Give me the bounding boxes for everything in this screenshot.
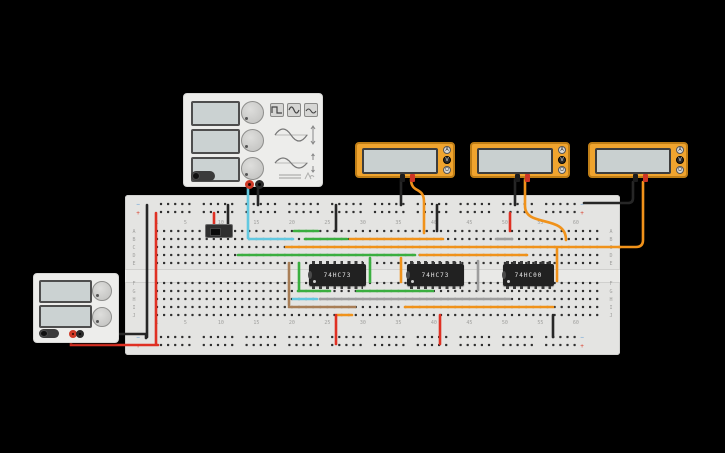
breadboard-hole[interactable] xyxy=(511,314,513,316)
breadboard-hole[interactable] xyxy=(589,238,591,240)
breadboard-hole[interactable] xyxy=(490,262,492,264)
breadboard-hole[interactable] xyxy=(220,298,222,300)
breadboard-hole[interactable] xyxy=(426,314,428,316)
breadboard-hole[interactable] xyxy=(589,306,591,308)
negative-terminal[interactable] xyxy=(255,180,264,189)
breadboard-hole[interactable] xyxy=(345,211,347,213)
breadboard-hole[interactable] xyxy=(509,336,511,338)
amplitude-knob[interactable] xyxy=(241,129,264,152)
breadboard-hole[interactable] xyxy=(220,262,222,264)
breadboard-hole[interactable] xyxy=(191,254,193,256)
breadboard-hole[interactable] xyxy=(383,314,385,316)
breadboard-hole[interactable] xyxy=(348,290,350,292)
breadboard-hole[interactable] xyxy=(481,211,483,213)
breadboard-hole[interactable] xyxy=(575,254,577,256)
breadboard-hole[interactable] xyxy=(589,230,591,232)
slide-switch-knob[interactable] xyxy=(210,228,221,236)
breadboard-hole[interactable] xyxy=(206,282,208,284)
breadboard-hole[interactable] xyxy=(388,336,390,338)
breadboard-hole[interactable] xyxy=(552,203,554,205)
ic-chip[interactable]: 74HC73 xyxy=(309,264,366,286)
breadboard-hole[interactable] xyxy=(270,282,272,284)
breadboard-hole[interactable] xyxy=(518,290,520,292)
breadboard-hole[interactable] xyxy=(303,336,305,338)
breadboard-hole[interactable] xyxy=(395,344,397,346)
breadboard-hole[interactable] xyxy=(417,336,419,338)
square-wave-button[interactable] xyxy=(270,103,284,117)
negative-probe-terminal[interactable] xyxy=(400,174,405,182)
breadboard-hole[interactable] xyxy=(277,306,279,308)
breadboard-hole[interactable] xyxy=(206,238,208,240)
breadboard-hole[interactable] xyxy=(248,290,250,292)
breadboard-hole[interactable] xyxy=(497,290,499,292)
breadboard-hole[interactable] xyxy=(288,336,290,338)
breadboard-hole[interactable] xyxy=(524,344,526,346)
breadboard-hole[interactable] xyxy=(360,344,362,346)
breadboard-hole[interactable] xyxy=(561,306,563,308)
breadboard-hole[interactable] xyxy=(220,290,222,292)
breadboard-hole[interactable] xyxy=(374,336,376,338)
breadboard-hole[interactable] xyxy=(298,314,300,316)
breadboard-hole[interactable] xyxy=(502,344,504,346)
breadboard-hole[interactable] xyxy=(575,282,577,284)
positive-probe-terminal[interactable] xyxy=(410,174,415,182)
breadboard-hole[interactable] xyxy=(360,336,362,338)
multimeter[interactable]: AVΩ xyxy=(355,142,455,178)
breadboard-hole[interactable] xyxy=(402,336,404,338)
breadboard-hole[interactable] xyxy=(539,290,541,292)
positive-terminal[interactable] xyxy=(245,180,254,189)
breadboard-hole[interactable] xyxy=(445,336,447,338)
breadboard-hole[interactable] xyxy=(270,262,272,264)
breadboard-hole[interactable] xyxy=(191,314,193,316)
breadboard-hole[interactable] xyxy=(227,246,229,248)
breadboard-hole[interactable] xyxy=(475,238,477,240)
breadboard-hole[interactable] xyxy=(234,314,236,316)
breadboard-hole[interactable] xyxy=(417,344,419,346)
breadboard-hole[interactable] xyxy=(184,230,186,232)
breadboard-hole[interactable] xyxy=(426,230,428,232)
breadboard-hole[interactable] xyxy=(388,203,390,205)
breadboard-hole[interactable] xyxy=(596,282,598,284)
breadboard-hole[interactable] xyxy=(227,306,229,308)
breadboard-hole[interactable] xyxy=(270,298,272,300)
mode-button-V[interactable]: V xyxy=(676,156,684,164)
breadboard-hole[interactable] xyxy=(402,211,404,213)
breadboard-hole[interactable] xyxy=(568,230,570,232)
breadboard-hole[interactable] xyxy=(191,230,193,232)
breadboard-hole[interactable] xyxy=(488,344,490,346)
breadboard-hole[interactable] xyxy=(241,290,243,292)
breadboard-hole[interactable] xyxy=(163,254,165,256)
breadboard-hole[interactable] xyxy=(468,238,470,240)
breadboard-hole[interactable] xyxy=(291,290,293,292)
breadboard-hole[interactable] xyxy=(561,262,563,264)
breadboard-hole[interactable] xyxy=(397,314,399,316)
breadboard-hole[interactable] xyxy=(369,314,371,316)
wire-black[interactable] xyxy=(584,182,633,203)
breadboard-hole[interactable] xyxy=(341,230,343,232)
breadboard-hole[interactable] xyxy=(199,262,201,264)
breadboard-hole[interactable] xyxy=(224,344,226,346)
breadboard-hole[interactable] xyxy=(210,344,212,346)
breadboard-hole[interactable] xyxy=(554,262,556,264)
breadboard-hole[interactable] xyxy=(277,298,279,300)
breadboard-hole[interactable] xyxy=(227,314,229,316)
breadboard-hole[interactable] xyxy=(376,314,378,316)
breadboard-hole[interactable] xyxy=(241,230,243,232)
breadboard-hole[interactable] xyxy=(163,246,165,248)
mode-button-A[interactable]: A xyxy=(443,146,451,154)
breadboard-hole[interactable] xyxy=(246,336,248,338)
breadboard-hole[interactable] xyxy=(160,211,162,213)
breadboard-hole[interactable] xyxy=(575,314,577,316)
breadboard-hole[interactable] xyxy=(461,290,463,292)
negative-probe-terminal[interactable] xyxy=(515,174,520,182)
breadboard-hole[interactable] xyxy=(390,306,392,308)
breadboard-hole[interactable] xyxy=(326,314,328,316)
breadboard-hole[interactable] xyxy=(546,254,548,256)
breadboard-hole[interactable] xyxy=(468,230,470,232)
breadboard-hole[interactable] xyxy=(167,344,169,346)
breadboard-hole[interactable] xyxy=(445,344,447,346)
breadboard-hole[interactable] xyxy=(525,230,527,232)
breadboard-hole[interactable] xyxy=(532,290,534,292)
breadboard-hole[interactable] xyxy=(167,211,169,213)
breadboard-hole[interactable] xyxy=(199,314,201,316)
breadboard-hole[interactable] xyxy=(248,314,250,316)
breadboard-hole[interactable] xyxy=(291,282,293,284)
breadboard-hole[interactable] xyxy=(518,314,520,316)
breadboard-hole[interactable] xyxy=(518,230,520,232)
breadboard-hole[interactable] xyxy=(383,306,385,308)
breadboard-hole[interactable] xyxy=(270,230,272,232)
breadboard-hole[interactable] xyxy=(260,203,262,205)
breadboard-hole[interactable] xyxy=(532,238,534,240)
breadboard-hole[interactable] xyxy=(341,290,343,292)
breadboard-hole[interactable] xyxy=(305,262,307,264)
breadboard-hole[interactable] xyxy=(253,344,255,346)
breadboard-hole[interactable] xyxy=(234,246,236,248)
breadboard-hole[interactable] xyxy=(596,238,598,240)
breadboard-hole[interactable] xyxy=(170,262,172,264)
breadboard-hole[interactable] xyxy=(438,211,440,213)
breadboard-hole[interactable] xyxy=(574,211,576,213)
breadboard-hole[interactable] xyxy=(575,298,577,300)
breadboard-hole[interactable] xyxy=(210,211,212,213)
breadboard-hole[interactable] xyxy=(203,203,205,205)
breadboard-hole[interactable] xyxy=(248,246,250,248)
mode-button-Ω[interactable]: Ω xyxy=(558,166,566,174)
breadboard-hole[interactable] xyxy=(277,230,279,232)
breadboard-hole[interactable] xyxy=(241,298,243,300)
mode-button-A[interactable]: A xyxy=(558,146,566,154)
breadboard-hole[interactable] xyxy=(270,306,272,308)
breadboard-hole[interactable] xyxy=(539,230,541,232)
breadboard-hole[interactable] xyxy=(481,344,483,346)
breadboard-hole[interactable] xyxy=(160,336,162,338)
breadboard-hole[interactable] xyxy=(490,230,492,232)
breadboard-hole[interactable] xyxy=(288,211,290,213)
breadboard-hole[interactable] xyxy=(267,336,269,338)
breadboard-hole[interactable] xyxy=(206,306,208,308)
breadboard-hole[interactable] xyxy=(220,314,222,316)
breadboard-hole[interactable] xyxy=(206,262,208,264)
breadboard-hole[interactable] xyxy=(568,238,570,240)
breadboard-hole[interactable] xyxy=(241,314,243,316)
breadboard-hole[interactable] xyxy=(532,230,534,232)
breadboard-hole[interactable] xyxy=(199,230,201,232)
breadboard-hole[interactable] xyxy=(163,290,165,292)
breadboard-hole[interactable] xyxy=(184,262,186,264)
breadboard-hole[interactable] xyxy=(288,344,290,346)
breadboard-hole[interactable] xyxy=(274,203,276,205)
breadboard-hole[interactable] xyxy=(255,290,257,292)
breadboard-hole[interactable] xyxy=(199,290,201,292)
breadboard-hole[interactable] xyxy=(433,314,435,316)
breadboard-hole[interactable] xyxy=(338,211,340,213)
breadboard-hole[interactable] xyxy=(191,262,193,264)
breadboard-hole[interactable] xyxy=(248,298,250,300)
breadboard-hole[interactable] xyxy=(582,290,584,292)
ic-chip[interactable]: 74HC00 xyxy=(503,264,554,286)
breadboard-hole[interactable] xyxy=(317,203,319,205)
breadboard-hole[interactable] xyxy=(517,336,519,338)
breadboard-hole[interactable] xyxy=(369,230,371,232)
breadboard-hole[interactable] xyxy=(338,344,340,346)
breadboard-hole[interactable] xyxy=(338,203,340,205)
breadboard-hole[interactable] xyxy=(181,344,183,346)
breadboard-hole[interactable] xyxy=(454,230,456,232)
breadboard-hole[interactable] xyxy=(253,203,255,205)
breadboard-hole[interactable] xyxy=(220,238,222,240)
breadboard-hole[interactable] xyxy=(188,211,190,213)
breadboard-hole[interactable] xyxy=(545,336,547,338)
breadboard-hole[interactable] xyxy=(210,336,212,338)
breadboard-hole[interactable] xyxy=(374,203,376,205)
breadboard-hole[interactable] xyxy=(191,246,193,248)
breadboard-hole[interactable] xyxy=(188,203,190,205)
breadboard-hole[interactable] xyxy=(539,298,541,300)
breadboard-hole[interactable] xyxy=(188,336,190,338)
breadboard-hole[interactable] xyxy=(220,306,222,308)
breadboard-hole[interactable] xyxy=(231,211,233,213)
breadboard-hole[interactable] xyxy=(206,298,208,300)
breadboard-hole[interactable] xyxy=(255,282,257,284)
negative-probe-terminal[interactable] xyxy=(633,174,638,182)
breadboard-hole[interactable] xyxy=(277,282,279,284)
breadboard-hole[interactable] xyxy=(554,254,556,256)
breadboard-hole[interactable] xyxy=(531,211,533,213)
breadboard-hole[interactable] xyxy=(559,344,561,346)
breadboard-hole[interactable] xyxy=(395,211,397,213)
breadboard-hole[interactable] xyxy=(390,282,392,284)
breadboard-hole[interactable] xyxy=(481,203,483,205)
wire-orange[interactable] xyxy=(619,182,643,247)
breadboard-hole[interactable] xyxy=(589,282,591,284)
breadboard-hole[interactable] xyxy=(582,306,584,308)
breadboard-hole[interactable] xyxy=(545,211,547,213)
breadboard-hole[interactable] xyxy=(217,344,219,346)
breadboard-hole[interactable] xyxy=(574,203,576,205)
breadboard-hole[interactable] xyxy=(474,203,476,205)
ic-chip[interactable]: 74HC73 xyxy=(407,264,464,286)
breadboard-hole[interactable] xyxy=(554,298,556,300)
breadboard-hole[interactable] xyxy=(417,203,419,205)
breadboard-hole[interactable] xyxy=(213,246,215,248)
breadboard-hole[interactable] xyxy=(170,290,172,292)
breadboard-hole[interactable] xyxy=(284,230,286,232)
breadboard-hole[interactable] xyxy=(374,344,376,346)
breadboard-hole[interactable] xyxy=(518,238,520,240)
breadboard-hole[interactable] xyxy=(517,344,519,346)
breadboard-hole[interactable] xyxy=(532,314,534,316)
breadboard-hole[interactable] xyxy=(303,344,305,346)
breadboard-hole[interactable] xyxy=(381,203,383,205)
breadboard-hole[interactable] xyxy=(227,282,229,284)
breadboard-hole[interactable] xyxy=(331,211,333,213)
breadboard-hole[interactable] xyxy=(352,211,354,213)
breadboard-hole[interactable] xyxy=(213,254,215,256)
breadboard-hole[interactable] xyxy=(546,298,548,300)
breadboard-hole[interactable] xyxy=(206,290,208,292)
breadboard-hole[interactable] xyxy=(497,282,499,284)
breadboard-hole[interactable] xyxy=(504,290,506,292)
breadboard-hole[interactable] xyxy=(461,230,463,232)
breadboard-hole[interactable] xyxy=(181,203,183,205)
breadboard-hole[interactable] xyxy=(163,262,165,264)
breadboard-hole[interactable] xyxy=(404,262,406,264)
breadboard-hole[interactable] xyxy=(447,230,449,232)
breadboard-hole[interactable] xyxy=(177,238,179,240)
breadboard-hole[interactable] xyxy=(284,290,286,292)
breadboard-hole[interactable] xyxy=(163,314,165,316)
breadboard-hole[interactable] xyxy=(412,314,414,316)
breadboard-hole[interactable] xyxy=(234,262,236,264)
breadboard-hole[interactable] xyxy=(504,314,506,316)
breadboard-hole[interactable] xyxy=(262,298,264,300)
breadboard-hole[interactable] xyxy=(160,344,162,346)
breadboard-hole[interactable] xyxy=(227,262,229,264)
breadboard-hole[interactable] xyxy=(305,282,307,284)
mode-button-A[interactable]: A xyxy=(676,146,684,154)
breadboard-hole[interactable] xyxy=(546,314,548,316)
breadboard-hole[interactable] xyxy=(355,230,357,232)
breadboard-hole[interactable] xyxy=(317,344,319,346)
breadboard-hole[interactable] xyxy=(331,344,333,346)
breadboard-hole[interactable] xyxy=(352,203,354,205)
breadboard-hole[interactable] xyxy=(360,211,362,213)
breadboard-hole[interactable] xyxy=(419,230,421,232)
breadboard-hole[interactable] xyxy=(524,336,526,338)
breadboard-hole[interactable] xyxy=(348,230,350,232)
breadboard-hole[interactable] xyxy=(518,298,520,300)
breadboard-hole[interactable] xyxy=(199,282,201,284)
breadboard-hole[interactable] xyxy=(431,211,433,213)
breadboard-hole[interactable] xyxy=(184,282,186,284)
breadboard-hole[interactable] xyxy=(488,203,490,205)
breadboard-hole[interactable] xyxy=(461,314,463,316)
breadboard-hole[interactable] xyxy=(160,203,162,205)
breadboard-hole[interactable] xyxy=(231,344,233,346)
breadboard-hole[interactable] xyxy=(596,230,598,232)
breadboard-hole[interactable] xyxy=(338,336,340,338)
breadboard-hole[interactable] xyxy=(170,230,172,232)
positive-probe-terminal[interactable] xyxy=(525,174,530,182)
breadboard-hole[interactable] xyxy=(468,314,470,316)
breadboard-hole[interactable] xyxy=(241,262,243,264)
breadboard-hole[interactable] xyxy=(561,282,563,284)
breadboard-hole[interactable] xyxy=(589,298,591,300)
breadboard-hole[interactable] xyxy=(191,282,193,284)
breadboard-hole[interactable] xyxy=(460,211,462,213)
breadboard-hole[interactable] xyxy=(596,298,598,300)
breadboard-hole[interactable] xyxy=(502,203,504,205)
breadboard-hole[interactable] xyxy=(177,290,179,292)
breadboard-hole[interactable] xyxy=(383,230,385,232)
breadboard-hole[interactable] xyxy=(267,203,269,205)
breadboard-hole[interactable] xyxy=(184,246,186,248)
breadboard-hole[interactable] xyxy=(270,314,272,316)
wire-orange[interactable] xyxy=(411,179,424,233)
breadboard-hole[interactable] xyxy=(170,238,172,240)
breadboard-hole[interactable] xyxy=(277,314,279,316)
breadboard-hole[interactable] xyxy=(355,314,357,316)
breadboard-hole[interactable] xyxy=(326,230,328,232)
triangle-wave-button[interactable] xyxy=(304,103,318,117)
breadboard-hole[interactable] xyxy=(260,344,262,346)
breadboard-hole[interactable] xyxy=(531,336,533,338)
breadboard-hole[interactable] xyxy=(291,262,293,264)
breadboard-hole[interactable] xyxy=(310,203,312,205)
breadboard-hole[interactable] xyxy=(561,254,563,256)
breadboard-hole[interactable] xyxy=(475,230,477,232)
breadboard-hole[interactable] xyxy=(475,314,477,316)
breadboard-hole[interactable] xyxy=(467,203,469,205)
breadboard-hole[interactable] xyxy=(177,298,179,300)
breadboard-hole[interactable] xyxy=(376,262,378,264)
breadboard-hole[interactable] xyxy=(262,314,264,316)
breadboard-hole[interactable] xyxy=(474,211,476,213)
breadboard-hole[interactable] xyxy=(574,344,576,346)
breadboard-hole[interactable] xyxy=(274,344,276,346)
breadboard-hole[interactable] xyxy=(566,211,568,213)
breadboard-hole[interactable] xyxy=(468,282,470,284)
current-knob[interactable] xyxy=(92,307,112,327)
breadboard-hole[interactable] xyxy=(234,290,236,292)
breadboard-hole[interactable] xyxy=(262,306,264,308)
breadboard-hole[interactable] xyxy=(589,262,591,264)
breadboard-hole[interactable] xyxy=(497,230,499,232)
breadboard-hole[interactable] xyxy=(319,314,321,316)
breadboard-hole[interactable] xyxy=(447,290,449,292)
breadboard-hole[interactable] xyxy=(248,306,250,308)
breadboard-hole[interactable] xyxy=(298,238,300,240)
breadboard-hole[interactable] xyxy=(390,262,392,264)
breadboard-hole[interactable] xyxy=(284,306,286,308)
breadboard-hole[interactable] xyxy=(362,306,364,308)
breadboard-hole[interactable] xyxy=(277,246,279,248)
breadboard-hole[interactable] xyxy=(303,211,305,213)
breadboard-hole[interactable] xyxy=(596,262,598,264)
breadboard-hole[interactable] xyxy=(454,238,456,240)
breadboard-hole[interactable] xyxy=(574,336,576,338)
breadboard-hole[interactable] xyxy=(362,230,364,232)
breadboard-hole[interactable] xyxy=(184,290,186,292)
breadboard-hole[interactable] xyxy=(270,290,272,292)
breadboard-hole[interactable] xyxy=(248,282,250,284)
breadboard-hole[interactable] xyxy=(191,298,193,300)
